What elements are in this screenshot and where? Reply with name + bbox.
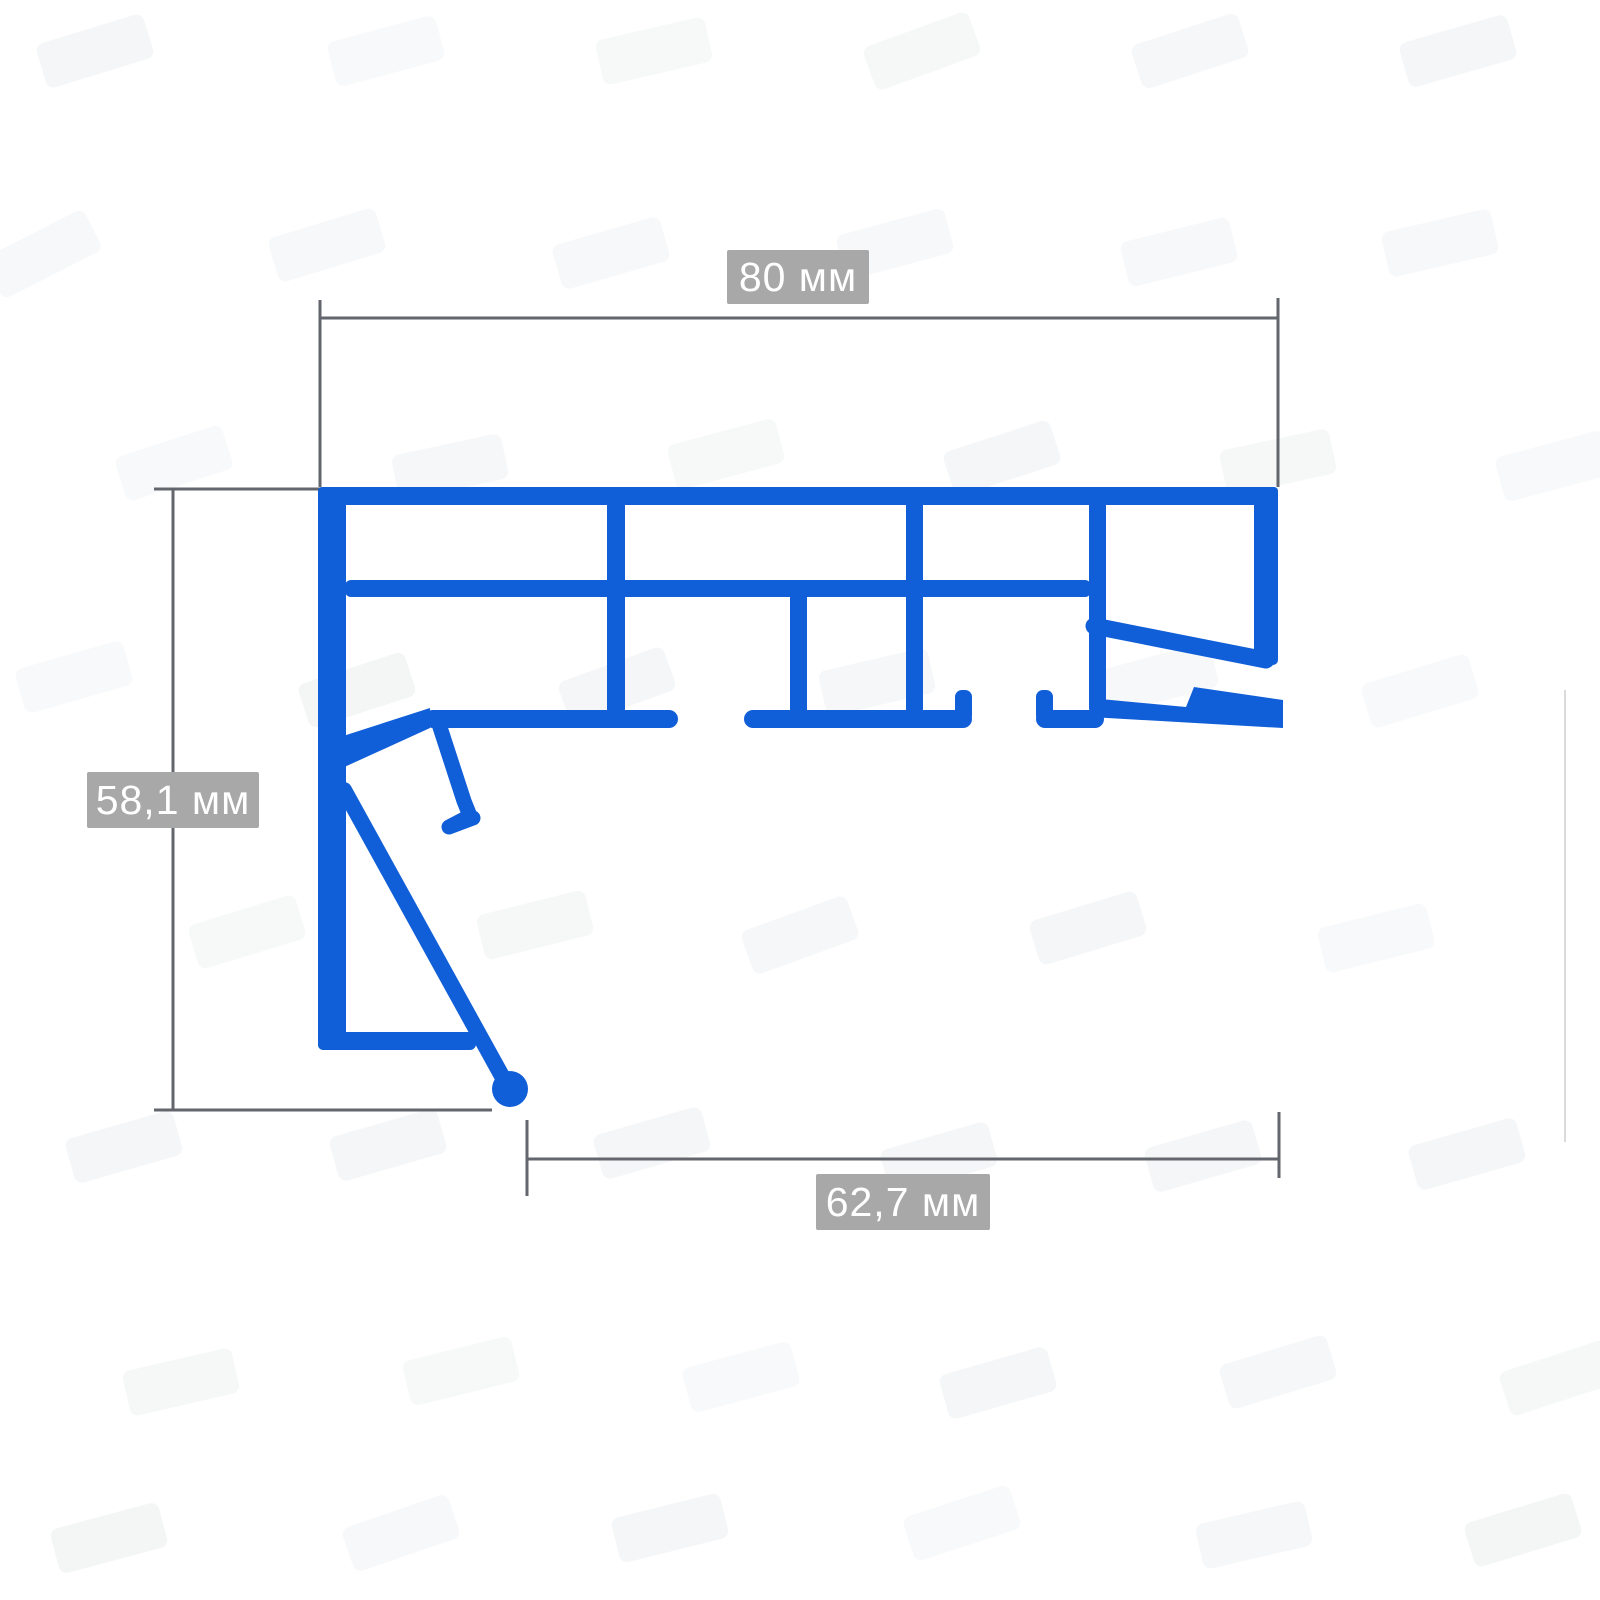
profile-cross-section	[318, 487, 1283, 1107]
profile-clip-hook	[437, 718, 473, 827]
profile-top-wall	[318, 487, 1278, 505]
profile-rib-2	[790, 592, 807, 716]
profile-bottom-shelf-a	[424, 710, 678, 728]
profile-rib-4	[1089, 500, 1106, 714]
profile-bottom-foot	[318, 1032, 476, 1050]
top-width-label: 80 мм	[727, 250, 869, 304]
diagram-canvas: 80 мм 58,1 мм 62,7 мм	[0, 0, 1600, 1600]
profile-right-wall	[1254, 487, 1278, 665]
profile-lower-diagonal-flange	[1090, 687, 1283, 728]
bottom-width-label: 62,7 мм	[816, 1174, 990, 1230]
profile-slot-nub-right	[1036, 690, 1053, 722]
profile-kink-web	[340, 708, 430, 769]
profile-rib-1	[607, 500, 625, 715]
profile-upper-diagonal-flange	[1094, 626, 1266, 660]
profile-mid-shelf	[345, 580, 1091, 597]
right-edge-line	[1564, 690, 1566, 1142]
profile-slot-nub-left	[955, 690, 972, 722]
profile-bottom-shelf-b	[744, 710, 972, 728]
profile-rib-3	[906, 500, 923, 715]
left-height-label: 58,1 мм	[87, 772, 259, 828]
profile-strut-ball-tip	[492, 1071, 528, 1107]
profile-left-wall	[318, 487, 346, 1050]
